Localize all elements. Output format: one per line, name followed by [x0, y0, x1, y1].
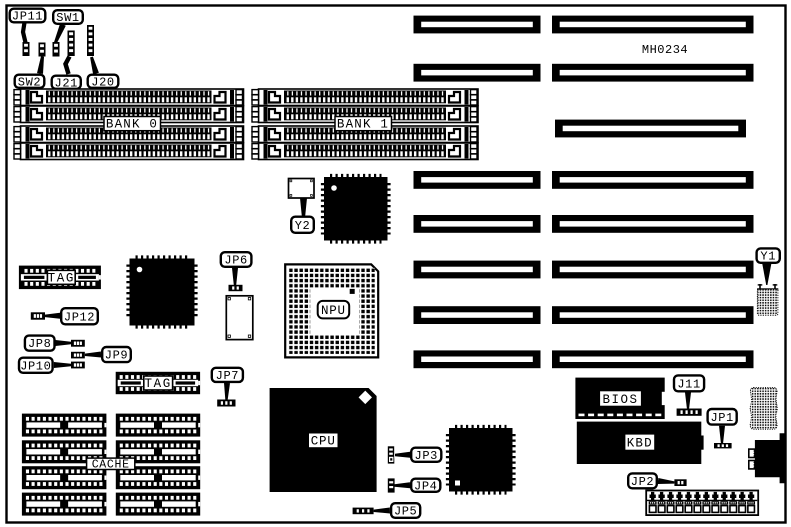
- svg-text:TAG: TAG: [48, 271, 75, 285]
- svg-text:JP5: JP5: [394, 505, 417, 519]
- svg-text:JP12: JP12: [64, 310, 95, 324]
- svg-text:J20: J20: [91, 75, 114, 89]
- svg-text:CACHE: CACHE: [92, 459, 130, 472]
- svg-text:SW2: SW2: [18, 75, 41, 89]
- svg-text:BANK 0: BANK 0: [106, 118, 158, 132]
- svg-text:BANK 1: BANK 1: [337, 118, 389, 132]
- svg-text:JP1: JP1: [710, 411, 733, 425]
- svg-text:JP7: JP7: [216, 369, 239, 383]
- svg-text:JP4: JP4: [414, 479, 437, 493]
- svg-text:JP9: JP9: [105, 349, 128, 363]
- svg-text:BIOS: BIOS: [602, 393, 638, 407]
- svg-text:JP10: JP10: [20, 359, 51, 373]
- svg-text:JP2: JP2: [631, 475, 654, 489]
- svg-text:MH0234: MH0234: [642, 43, 688, 57]
- svg-text:J11: J11: [677, 377, 700, 391]
- svg-text:KBD: KBD: [627, 437, 653, 451]
- svg-text:SW1: SW1: [56, 11, 79, 25]
- svg-text:Y2: Y2: [295, 219, 311, 233]
- svg-text:JP11: JP11: [12, 10, 43, 24]
- svg-text:JP3: JP3: [415, 449, 438, 463]
- svg-text:J21: J21: [55, 76, 78, 90]
- svg-text:TAG: TAG: [145, 377, 172, 391]
- svg-text:CPU: CPU: [311, 435, 336, 449]
- svg-text:JP6: JP6: [224, 254, 247, 268]
- svg-text:NPU: NPU: [321, 304, 346, 318]
- svg-text:JP8: JP8: [28, 337, 51, 351]
- svg-text:Y1: Y1: [760, 250, 776, 264]
